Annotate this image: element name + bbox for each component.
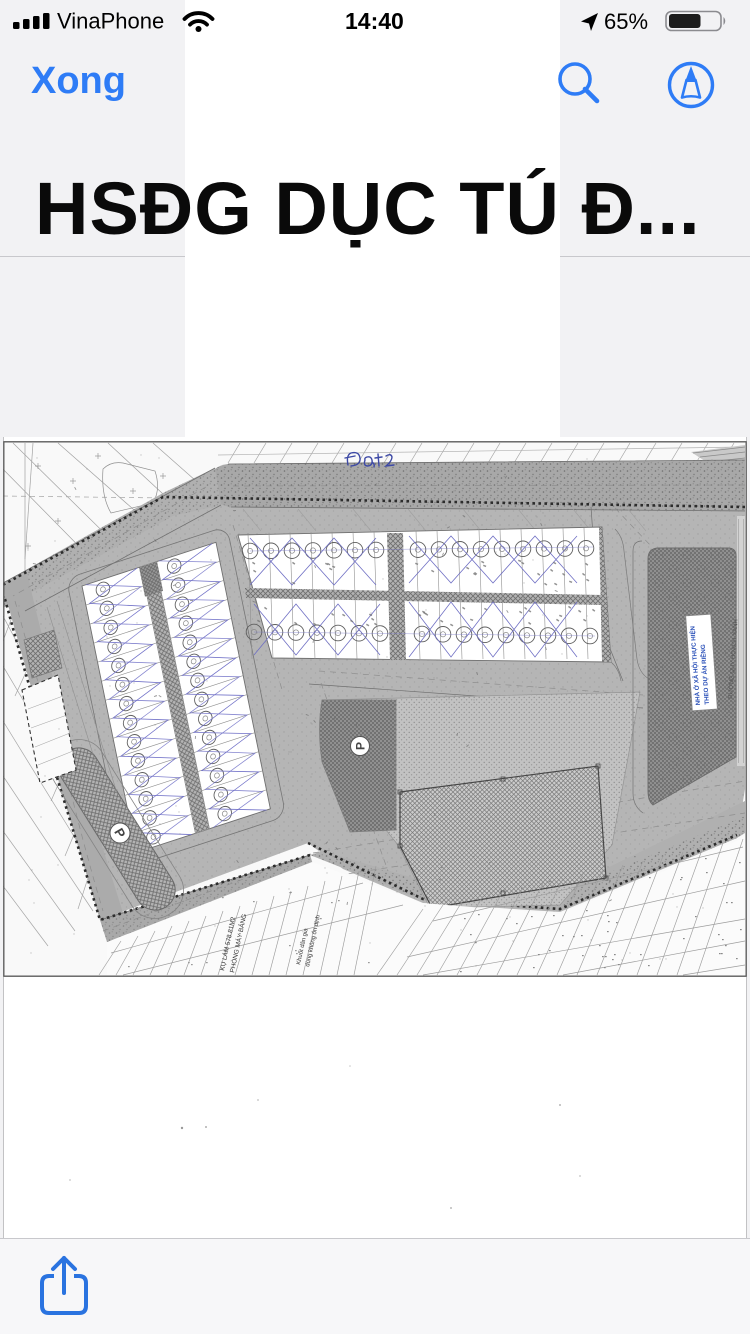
svg-text:65%: 65% [604,9,648,34]
svg-text:14:40: 14:40 [345,8,404,34]
svg-text:VinaPhone: VinaPhone [57,9,164,34]
svg-text:P: P [354,742,368,750]
